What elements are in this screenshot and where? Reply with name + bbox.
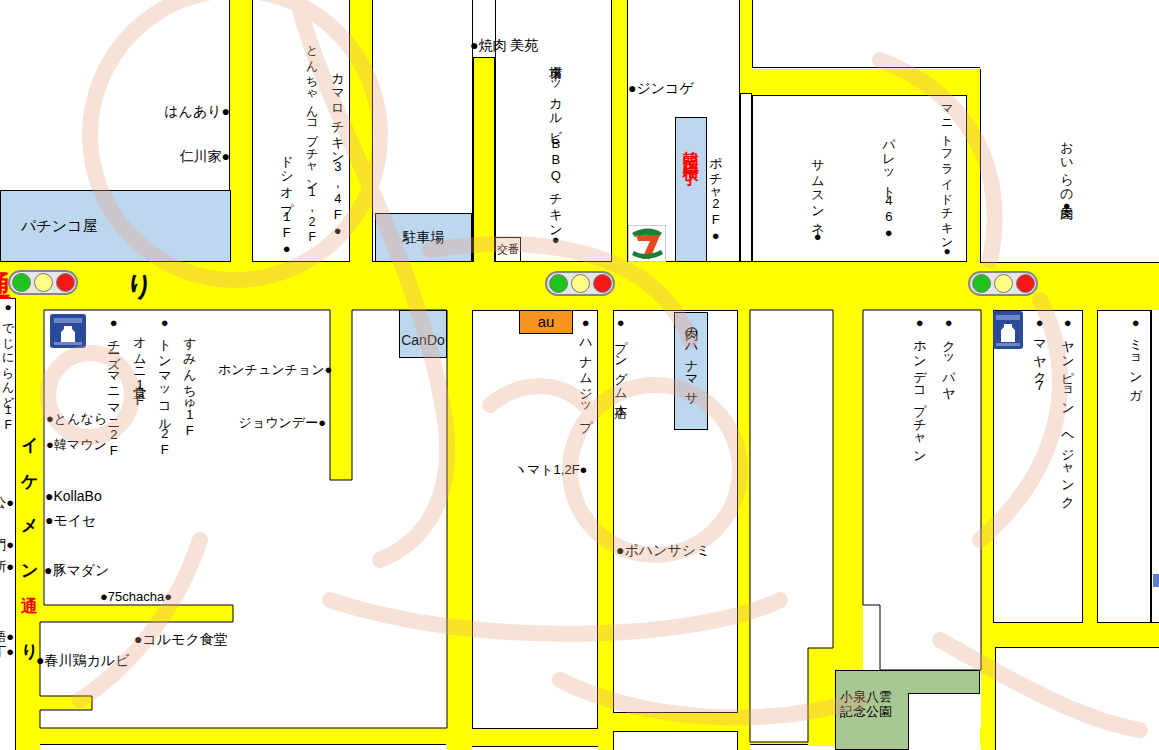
block-bottom-right (995, 647, 1159, 750)
shop-cutoff-left: 所● (0, 560, 14, 575)
shop-yangpyon-hejanku: ●ヤンピョン ヘジャンク (1060, 315, 1074, 503)
shop-cutoff-left: 門● (0, 538, 14, 553)
road-vertical-c (473, 57, 495, 262)
shop-moise: ●モイセ (45, 512, 96, 528)
shop-pohan-sashimi: ●ポハンサシミ (616, 542, 710, 558)
shop-chuncheon-kalbi: ●春川鶏カルビ (36, 652, 129, 668)
shop-ichiba-dakgalbi: 市場タッカルビBBQチキン● (548, 55, 562, 248)
road-horizontal-o (981, 623, 1159, 647)
shop-jounde: ジョウンデー● (226, 416, 326, 431)
block-bottom-sliver (40, 744, 446, 750)
shop-cheese-manimani: ●チーズマニマニ2F (106, 315, 120, 459)
road-vertical-k (738, 310, 750, 750)
block-top-northeast (752, 0, 980, 68)
ikemen-street-char: ン (21, 559, 38, 582)
road-stub-p (16, 605, 233, 622)
shop-manito-fried-chicken: マニトフライドチキン● (940, 97, 953, 259)
road-horizontal-f (740, 69, 980, 95)
shop-honchunchon: ホンチュンチョン● (218, 363, 326, 378)
park-label: 小泉八雲 記念公園 (840, 690, 892, 720)
shop-pungmu-honten: ●プングム本店 (613, 315, 627, 396)
block-gap-sliver (740, 93, 752, 262)
shop-hanmaun: ●韓マウン (46, 438, 107, 453)
block-samsunne (752, 95, 967, 262)
block-bottom-sliver (750, 744, 808, 750)
ikemen-street-char: ケ (21, 470, 38, 493)
shop-samsunne: サムスンネ● (810, 150, 824, 245)
road-vertical-g (967, 69, 980, 262)
ikemen-street-char: 通 (21, 595, 38, 618)
lawson-icon (993, 311, 1023, 353)
shop-mayak7: ●マヤク7 (1032, 315, 1046, 394)
road-stub-q (16, 696, 92, 710)
shop-suminchu: すみんちゅ1F (182, 328, 196, 439)
cando-box: CanDo (399, 310, 447, 358)
shop-kamaro-chicken: カマロチキン3,4F● (330, 64, 344, 239)
kankoku-yokocho-label: 韓国横丁 (682, 138, 700, 261)
shop-kolmok-shokudo: ●コルモク食堂 (134, 631, 228, 647)
ikemen-street-char: メ (21, 514, 38, 537)
pachinko-label: パチンコ屋 (21, 217, 97, 234)
shop-cutoff-left: 語● (0, 630, 14, 645)
hanamasa-box: 肉のハナマサ (674, 312, 708, 430)
road-vertical-h (330, 310, 352, 480)
shop-yakiniku-mien: ●焼肉 美苑 (470, 37, 538, 53)
shop-doshiop: ドシオプ1F● (279, 146, 293, 257)
shop-oira-nikuya: おいらの肉屋● (1059, 133, 1073, 214)
road-edge-line (980, 69, 981, 262)
cando-label: CanDo (401, 332, 445, 348)
main-road-name-right: り (126, 268, 154, 304)
shop-jinkoge: ●ジンコゲ (628, 80, 694, 96)
au-box: au (519, 310, 573, 334)
road-edge-line (980, 262, 1159, 263)
shop-pocha-2f: ポチャ2F● (708, 148, 722, 244)
main-road-name-left: 通 (0, 268, 11, 304)
koban-box: 交番 (495, 237, 521, 262)
hanamasa-label: 肉のハナマサ (684, 318, 698, 429)
shop-cutoff-left: 公● (0, 496, 14, 511)
seven-eleven-icon (628, 225, 666, 266)
shop-dejini-land: ●でじにらんど1F (1, 300, 14, 433)
parking-label: 駐車場 (403, 229, 445, 245)
shop-kuppaya: ●クッパヤ (941, 315, 955, 394)
shop-tonchan-kopchan: とんちゃんコプチャン1,2F (305, 38, 318, 245)
traffic-light-icon (545, 271, 615, 296)
parking-box: 駐車場 (375, 213, 472, 262)
right-edge-cutoff-label (1153, 574, 1159, 587)
traffic-light-icon (968, 271, 1038, 296)
shop-butamadan: ●豚マダン (44, 562, 109, 578)
road-vertical-j (598, 310, 613, 750)
traffic-light-icon (8, 270, 78, 295)
road-vertical-i (447, 310, 472, 750)
block-bottom-sliver (613, 731, 738, 750)
koban-label: 交番 (497, 243, 519, 256)
ikemen-street-char: イ (21, 434, 38, 457)
park-notch (908, 693, 980, 750)
road-vertical-l (833, 310, 863, 670)
road-vertical-d (612, 0, 627, 262)
road-vertical-n (1083, 310, 1097, 623)
shop-tonnara: ●とんなら (46, 412, 107, 427)
shop-hanamu-jip: ●ハナムジップ (578, 315, 592, 426)
shop-hanari: はんあり● (130, 103, 230, 119)
shop-hondae-kopchan: ●ホンデコプチャン (912, 315, 926, 458)
pachinko-box: パチンコ屋 (0, 190, 231, 262)
shinokubo-map: 小泉八雲 記念公園 パチンコ屋 駐車場 交番 CanDo au 韓国横丁 肉のハ… (0, 0, 1159, 750)
lawson-icon (50, 314, 86, 352)
shop-omuni-shokudo: オムニ食堂1F (132, 328, 146, 409)
shop-75chacha: ●75chacha● (100, 590, 172, 605)
shop-cutoff-left: 丁● (0, 645, 14, 660)
shop-incheonya: 仁川家● (130, 148, 230, 164)
au-label: au (538, 313, 555, 330)
road-vertical-b (350, 0, 372, 262)
block-bottom-sliver (472, 746, 598, 750)
shop-mato: ヽマト1,2F● (514, 463, 587, 478)
shop-kollabo: ●KollaBo (45, 488, 102, 504)
road-vertical-e (740, 0, 752, 70)
kankoku-yokocho-box: 韓国横丁 (675, 117, 707, 262)
road-vertical-a (230, 0, 252, 262)
shop-palette46: パレット46● (881, 130, 895, 241)
shop-myonga: ●ミョンガ (1128, 315, 1142, 394)
shop-tonmakkol: ●トンマッコル2F (157, 315, 171, 458)
